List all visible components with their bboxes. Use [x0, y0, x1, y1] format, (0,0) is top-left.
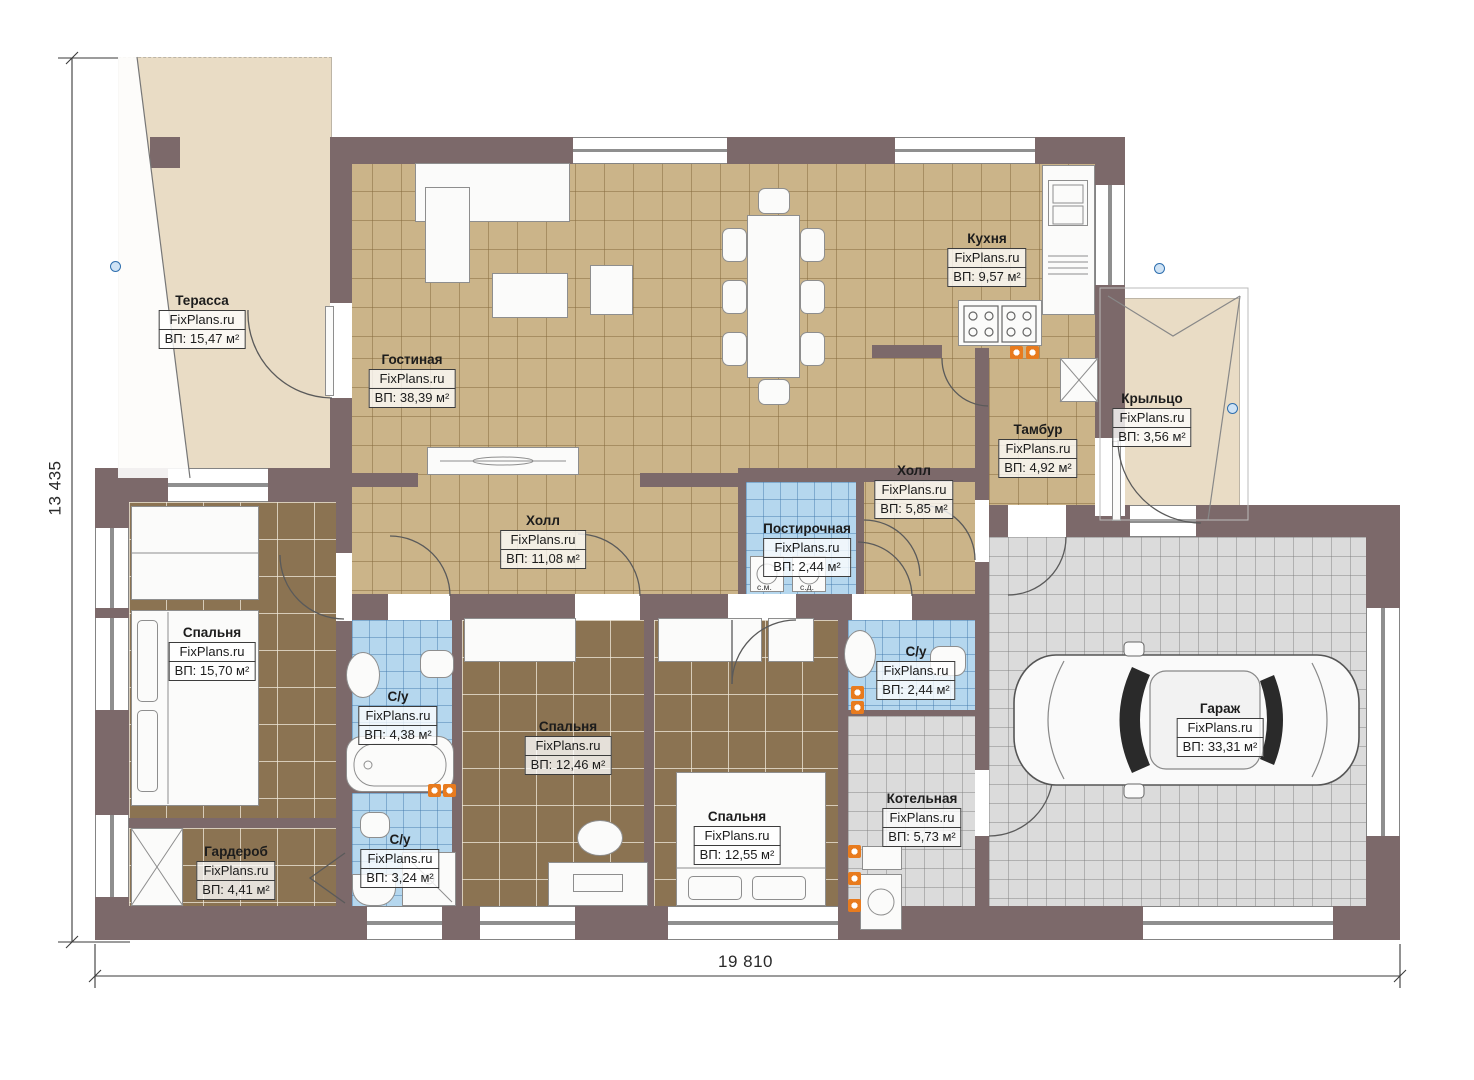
room-label-hall-main: Холл FixPlans.ru ВП: 11,08 м²: [500, 513, 586, 569]
room-area: ВП: 5,73 м²: [882, 827, 961, 847]
room-name: Крыльцо: [1112, 391, 1191, 406]
room-label-living: Гостиная FixPlans.ru ВП: 38,39 м²: [369, 352, 456, 408]
dimension-width: 19 810: [718, 952, 773, 972]
room-name: Спальня: [525, 719, 612, 734]
dimension-height: 13 435: [46, 461, 66, 516]
pillow: [137, 710, 158, 792]
service-icon: [848, 899, 861, 912]
dining-table: [747, 215, 800, 378]
wardrobe-unit: [464, 618, 576, 662]
door-opening: [728, 594, 796, 620]
brand-watermark: FixPlans.ru: [525, 736, 612, 756]
room-name: Котельная: [882, 791, 961, 806]
room-label-terrace: Терасса FixPlans.ru ВП: 15,47 м²: [159, 293, 246, 349]
chair: [800, 228, 825, 262]
room-area: ВП: 11,08 м²: [500, 549, 586, 569]
service-icon: [443, 784, 456, 797]
brand-watermark: FixPlans.ru: [947, 248, 1026, 268]
window: [1130, 505, 1196, 537]
washing-machine: [860, 874, 902, 930]
closet: [1060, 358, 1098, 402]
wall: [848, 710, 975, 716]
door-opening: [1008, 505, 1066, 537]
room-label-garage: Гараж FixPlans.ru ВП: 33,31 м²: [1177, 701, 1264, 757]
brand-watermark: FixPlans.ru: [882, 808, 961, 828]
room-name: Спальня: [169, 625, 256, 640]
window: [95, 618, 129, 710]
window: [573, 137, 727, 164]
room-name: Холл: [500, 513, 586, 528]
anchor-handle[interactable]: [110, 261, 121, 272]
sofa-chaise: [425, 187, 470, 283]
room-label-wardrobe: Гардероб FixPlans.ru ВП: 4,41 м²: [196, 844, 275, 900]
chair: [722, 228, 747, 262]
brand-watermark: FixPlans.ru: [1112, 408, 1191, 428]
brand-watermark: FixPlans.ru: [500, 530, 586, 550]
room-label-laundry: Постирочная FixPlans.ru ВП: 2,44 м²: [763, 521, 851, 577]
wardrobe-unit: [658, 618, 762, 662]
room-name: С/у: [876, 644, 955, 659]
chair: [722, 280, 747, 314]
window: [1143, 906, 1333, 940]
coffee-table: [492, 273, 568, 318]
window: [95, 528, 129, 608]
door-opening: [575, 594, 640, 620]
brand-watermark: FixPlans.ru: [874, 480, 953, 500]
brand-watermark: FixPlans.ru: [876, 661, 955, 681]
service-icon: [848, 845, 861, 858]
pillow: [752, 876, 806, 900]
wall: [872, 345, 942, 358]
room-area: ВП: 38,39 м²: [369, 388, 456, 408]
window: [1095, 185, 1125, 285]
room-label-bath3: С/у FixPlans.ru ВП: 3,24 м²: [360, 832, 439, 888]
kitchen-sink: [1048, 180, 1088, 226]
room-area: ВП: 5,85 м²: [874, 499, 953, 519]
room-label-kitchen: Кухня FixPlans.ru ВП: 9,57 м²: [947, 231, 1026, 287]
brand-watermark: FixPlans.ru: [763, 538, 851, 558]
wall: [856, 480, 864, 595]
terrace-column: [150, 137, 180, 168]
toilet: [420, 650, 454, 678]
window: [95, 815, 129, 897]
window: [168, 468, 268, 502]
room-name: Гараж: [1177, 701, 1264, 716]
wall: [738, 480, 746, 595]
window: [668, 906, 838, 940]
room-name: Холл: [874, 463, 953, 478]
door-leaf: [325, 306, 334, 396]
door-opening: [975, 770, 989, 836]
wall: [640, 473, 738, 487]
tv-stand: [427, 447, 579, 475]
armchair: [590, 265, 633, 315]
garage-door: [1366, 608, 1400, 836]
chair: [800, 280, 825, 314]
service-icon: [1010, 346, 1023, 359]
room-name: Кухня: [947, 231, 1026, 246]
room-label-hall-small: Холл FixPlans.ru ВП: 5,85 м²: [874, 463, 953, 519]
brand-watermark: FixPlans.ru: [694, 826, 781, 846]
room-label-bedroom2: Спальня FixPlans.ru ВП: 12,46 м²: [525, 719, 612, 775]
wall: [336, 468, 352, 940]
window: [480, 906, 575, 940]
room-label-porch: Крыльцо FixPlans.ru ВП: 3,56 м²: [1112, 391, 1191, 447]
chair: [758, 188, 790, 214]
room-area: ВП: 3,56 м²: [1112, 427, 1191, 447]
door-opening: [336, 553, 352, 621]
room-name: С/у: [360, 832, 439, 847]
brand-watermark: FixPlans.ru: [360, 849, 439, 869]
room-area: ВП: 2,44 м²: [763, 557, 851, 577]
service-icon: [848, 872, 861, 885]
wall: [129, 818, 336, 828]
brand-watermark: FixPlans.ru: [159, 310, 246, 330]
brand-watermark: FixPlans.ru: [196, 861, 275, 881]
room-name: Постирочная: [763, 521, 851, 536]
pillow: [137, 620, 158, 702]
room-area: ВП: 2,44 м²: [876, 680, 955, 700]
room-area: ВП: 12,55 м²: [694, 845, 781, 865]
brand-watermark: FixPlans.ru: [998, 439, 1077, 459]
window: [895, 137, 1035, 164]
room-area: ВП: 12,46 м²: [525, 755, 612, 775]
room-name: Спальня: [694, 809, 781, 824]
room-area: ВП: 4,41 м²: [196, 880, 275, 900]
service-icon: [428, 784, 441, 797]
desk-chair: [577, 820, 623, 856]
dryer-tag: с.д.: [800, 582, 814, 592]
room-area: ВП: 4,38 м²: [358, 725, 437, 745]
wardrobe-unit: [131, 828, 183, 906]
room-label-vestibule: Тамбур FixPlans.ru ВП: 4,92 м²: [998, 422, 1077, 478]
brand-watermark: FixPlans.ru: [369, 369, 456, 389]
anchor-handle[interactable]: [1154, 263, 1165, 274]
anchor-handle[interactable]: [1227, 403, 1238, 414]
service-icon: [851, 686, 864, 699]
room-name: Тамбур: [998, 422, 1077, 437]
room-area: ВП: 3,24 м²: [360, 868, 439, 888]
brand-watermark: FixPlans.ru: [1177, 718, 1264, 738]
door-leaf: [1112, 441, 1121, 521]
door-opening: [388, 594, 450, 620]
chair: [800, 332, 825, 366]
room-name: Гостиная: [369, 352, 456, 367]
room-area: ВП: 4,92 м²: [998, 458, 1077, 478]
room-area: ВП: 33,31 м²: [1177, 737, 1264, 757]
monitor: [573, 874, 623, 892]
door-opening: [975, 500, 989, 562]
room-name: Гардероб: [196, 844, 275, 859]
bathroom-sink: [844, 630, 876, 678]
terrace-floor: [118, 57, 332, 480]
pillow: [688, 876, 742, 900]
brand-watermark: FixPlans.ru: [358, 706, 437, 726]
room-label-bedroom1: Спальня FixPlans.ru ВП: 15,70 м²: [169, 625, 256, 681]
room-name: С/у: [358, 689, 437, 704]
service-icon: [851, 701, 864, 714]
window: [367, 906, 442, 940]
wardrobe-unit: [768, 618, 814, 662]
door-opening: [852, 594, 912, 620]
service-icon: [1026, 346, 1039, 359]
room-label-boiler: Котельная FixPlans.ru ВП: 5,73 м²: [882, 791, 961, 847]
room-area: ВП: 9,57 м²: [947, 267, 1026, 287]
room-area: ВП: 15,47 м²: [159, 329, 246, 349]
room-label-bath1: С/у FixPlans.ru ВП: 4,38 м²: [358, 689, 437, 745]
wall: [330, 473, 418, 487]
room-label-bedroom3: Спальня FixPlans.ru ВП: 12,55 м²: [694, 809, 781, 865]
kitchen-counter-lower: [958, 300, 1042, 346]
room-label-bath2: С/у FixPlans.ru ВП: 2,44 м²: [876, 644, 955, 700]
room-area: ВП: 15,70 м²: [169, 661, 256, 681]
boiler-unit: [862, 846, 902, 870]
chair: [722, 332, 747, 366]
room-name: Терасса: [159, 293, 246, 308]
washer-tag: с.м.: [757, 582, 772, 592]
floor-plan: 13 435 19 810 Терасса FixPlans.ru ВП: 15…: [0, 0, 1474, 1080]
chair: [758, 379, 790, 405]
brand-watermark: FixPlans.ru: [169, 642, 256, 662]
wardrobe-unit: [131, 506, 259, 600]
